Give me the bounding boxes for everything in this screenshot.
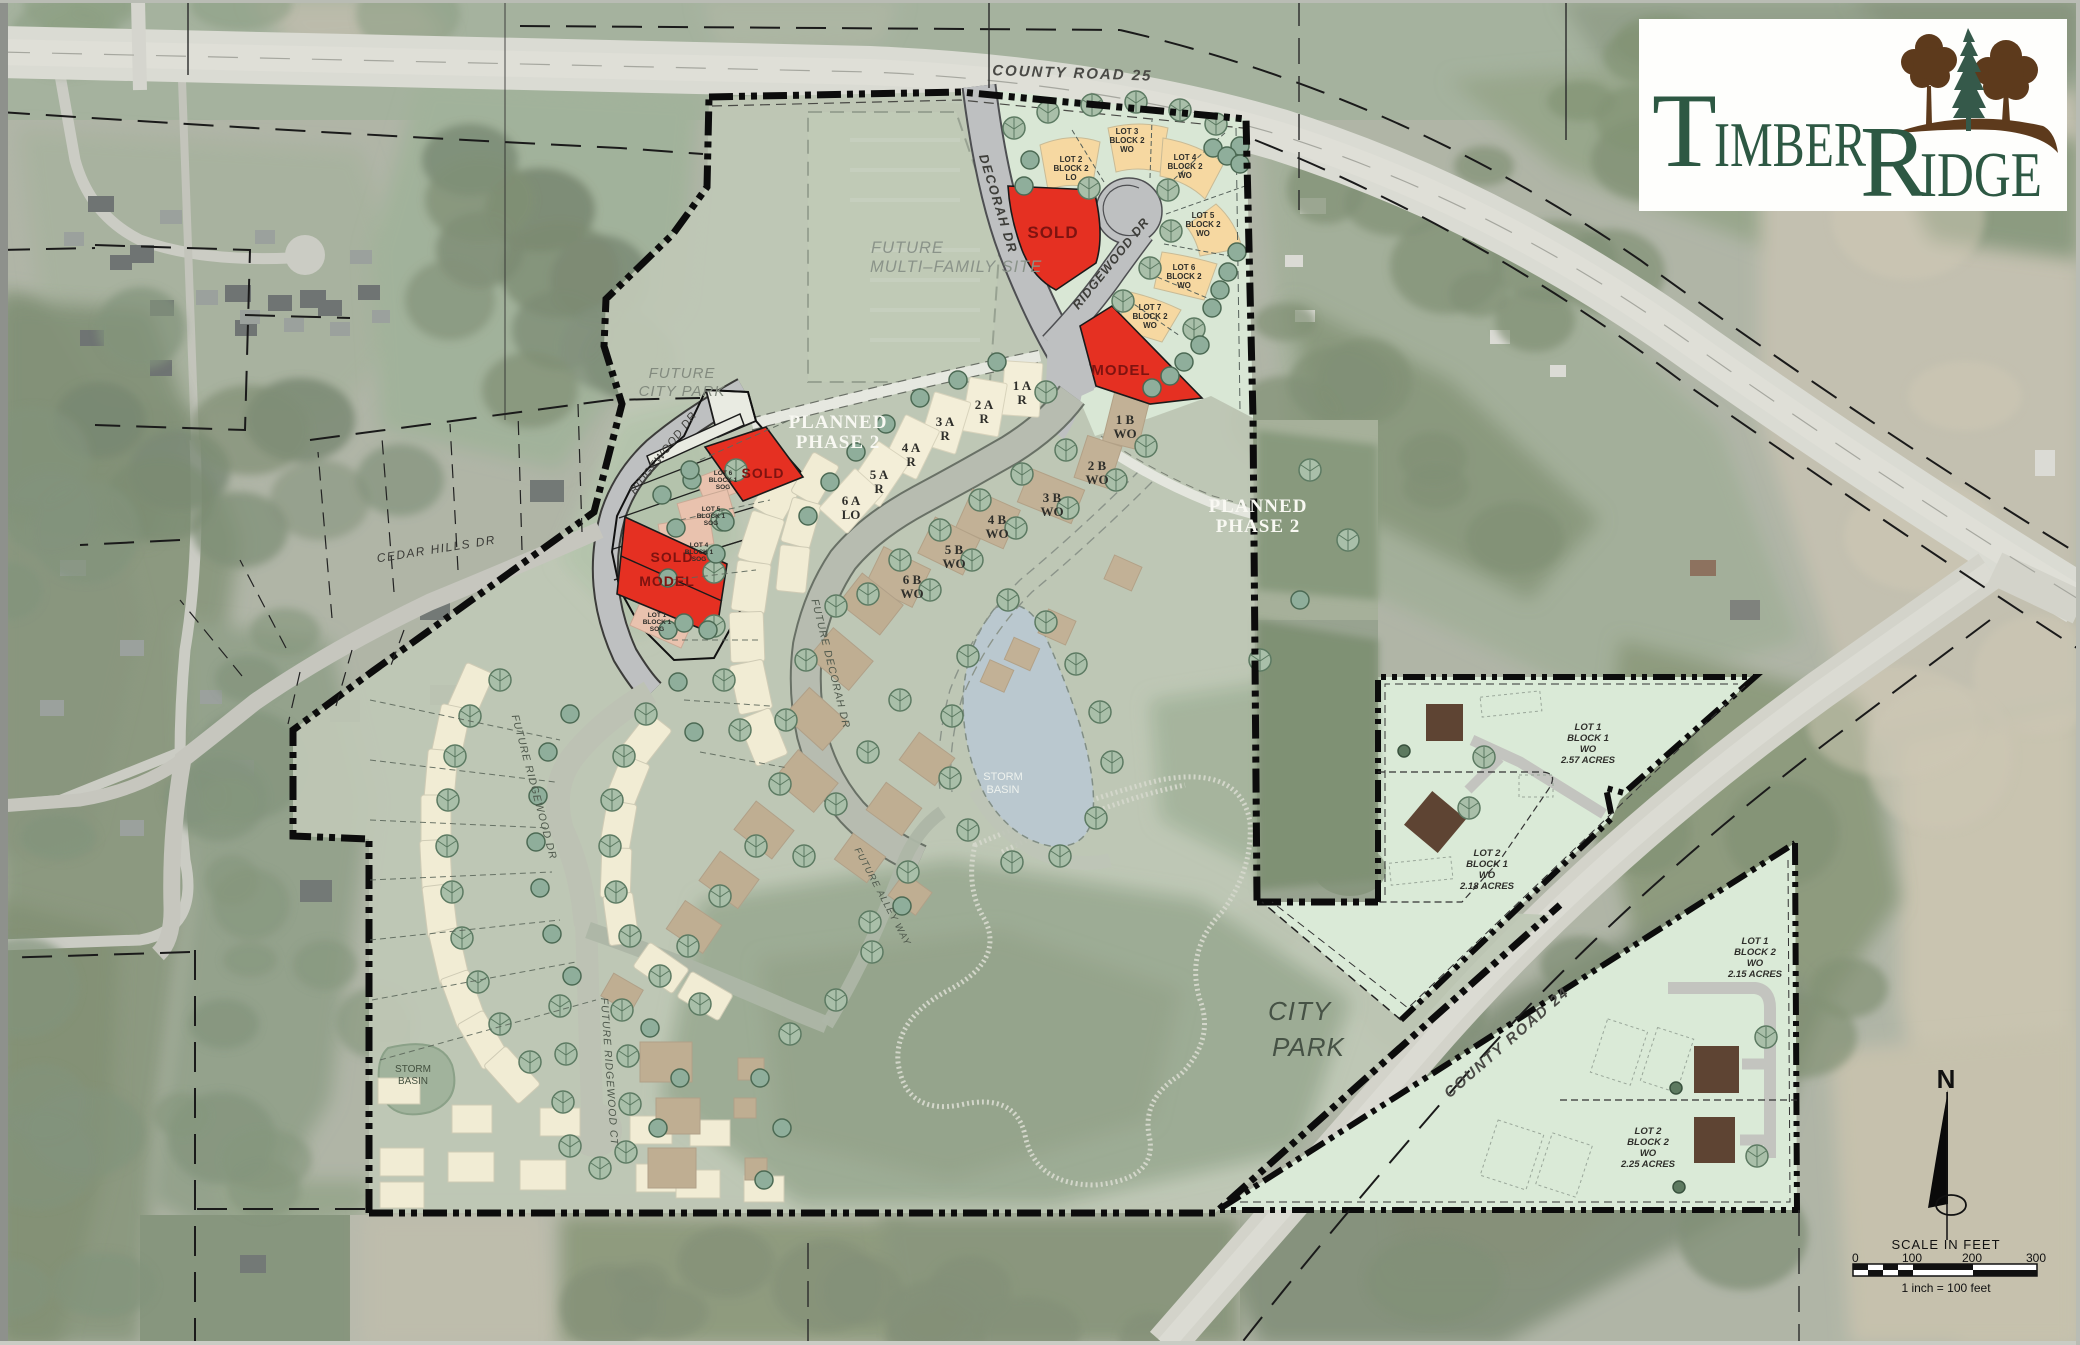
svg-text:PHASE 2: PHASE 2: [1216, 516, 1301, 537]
svg-text:1 B: 1 B: [1116, 412, 1135, 427]
svg-text:N: N: [1937, 1064, 1956, 1094]
svg-text:4 A: 4 A: [902, 440, 921, 455]
svg-text:BLOCK 2: BLOCK 2: [1185, 220, 1221, 229]
svg-text:FUTURE: FUTURE: [649, 365, 716, 382]
svg-text:T: T: [1652, 72, 1717, 189]
svg-text:WO: WO: [1143, 321, 1157, 330]
svg-text:4 B: 4 B: [988, 512, 1007, 527]
svg-text:WO: WO: [1196, 229, 1210, 238]
svg-text:200: 200: [1962, 1251, 1982, 1265]
svg-text:PLANNED: PLANNED: [1209, 496, 1308, 517]
svg-text:MODEL: MODEL: [639, 573, 695, 589]
svg-text:LOT 3: LOT 3: [1116, 127, 1139, 136]
svg-text:BLOCK 1: BLOCK 1: [685, 549, 714, 556]
svg-text:WO: WO: [1178, 171, 1192, 180]
svg-text:1 A: 1 A: [1013, 378, 1032, 393]
svg-text:2.57 ACRES: 2.57 ACRES: [1560, 755, 1616, 766]
svg-text:WO: WO: [1120, 145, 1134, 154]
svg-text:BLOCK 2: BLOCK 2: [1132, 312, 1168, 321]
svg-text:LOT 5: LOT 5: [702, 506, 721, 513]
svg-text:2 B: 2 B: [1088, 458, 1107, 473]
svg-text:WO: WO: [1040, 504, 1063, 519]
svg-text:0: 0: [1852, 1251, 1859, 1265]
svg-text:1 inch = 100 feet: 1 inch = 100 feet: [1901, 1281, 1991, 1295]
svg-text:LOT 6: LOT 6: [1173, 263, 1196, 272]
svg-text:BLOCK 2: BLOCK 2: [1734, 947, 1776, 958]
svg-text:BLOCK 1: BLOCK 1: [709, 477, 738, 484]
svg-text:2 A: 2 A: [975, 397, 994, 412]
svg-text:WO: WO: [1747, 958, 1764, 969]
svg-text:STORM: STORM: [983, 771, 1023, 783]
svg-text:SOG: SOG: [692, 556, 706, 563]
svg-text:R: R: [1017, 392, 1027, 407]
svg-text:BLOCK 1: BLOCK 1: [697, 513, 726, 520]
svg-text:BLOCK 2: BLOCK 2: [1053, 164, 1089, 173]
svg-text:WO: WO: [1113, 426, 1136, 441]
svg-text:2.15 ACRES: 2.15 ACRES: [1727, 969, 1783, 980]
svg-text:SCALE IN FEET: SCALE IN FEET: [1891, 1237, 2000, 1252]
svg-text:BLOCK 2: BLOCK 2: [1166, 272, 1202, 281]
svg-text:2.18 ACRES: 2.18 ACRES: [1459, 881, 1515, 892]
svg-text:PARK: PARK: [1272, 1032, 1346, 1062]
svg-text:IDGE: IDGE: [1920, 140, 2042, 210]
svg-text:LOT 2: LOT 2: [1474, 848, 1502, 859]
svg-text:BLOCK 1: BLOCK 1: [1466, 859, 1508, 870]
svg-text:LOT 6: LOT 6: [714, 470, 733, 477]
svg-text:BLOCK 2: BLOCK 2: [1627, 1137, 1669, 1148]
svg-text:R: R: [979, 411, 989, 426]
svg-text:LO: LO: [1065, 173, 1076, 182]
svg-text:6 A: 6 A: [842, 493, 861, 508]
svg-text:LOT 7: LOT 7: [1139, 303, 1162, 312]
svg-text:BASIN: BASIN: [398, 1076, 428, 1087]
svg-text:LOT 1: LOT 1: [1575, 722, 1602, 733]
svg-text:LOT 2: LOT 2: [1060, 155, 1083, 164]
svg-text:SOG: SOG: [650, 626, 664, 633]
svg-text:SOLD: SOLD: [1027, 223, 1078, 242]
svg-text:BASIN: BASIN: [986, 784, 1019, 796]
svg-text:WO: WO: [1479, 870, 1496, 881]
svg-text:R: R: [940, 428, 950, 443]
svg-text:CITY PARK: CITY PARK: [639, 383, 726, 400]
svg-text:SOG: SOG: [716, 484, 730, 491]
svg-text:R: R: [874, 481, 884, 496]
svg-text:LOT 1: LOT 1: [648, 612, 667, 619]
svg-text:WO: WO: [985, 526, 1008, 541]
svg-text:WO: WO: [1085, 472, 1108, 487]
svg-text:300: 300: [2026, 1251, 2046, 1265]
svg-text:LOT 1: LOT 1: [1742, 936, 1769, 947]
svg-text:PHASE 2: PHASE 2: [796, 432, 881, 453]
svg-text:2.25 ACRES: 2.25 ACRES: [1620, 1159, 1676, 1170]
svg-text:LOT 5: LOT 5: [1192, 211, 1215, 220]
svg-text:R: R: [1860, 106, 1928, 219]
svg-text:MULTI–FAMILY SITE: MULTI–FAMILY SITE: [870, 258, 1042, 276]
svg-text:STORM: STORM: [395, 1064, 431, 1075]
svg-text:5 A: 5 A: [870, 467, 889, 482]
svg-text:BLOCK 2: BLOCK 2: [1167, 162, 1203, 171]
svg-text:WO: WO: [900, 586, 923, 601]
svg-text:LOT 4: LOT 4: [1174, 153, 1197, 162]
svg-text:SOLD: SOLD: [742, 465, 785, 481]
svg-text:MODEL: MODEL: [1091, 362, 1150, 379]
svg-text:IMBER: IMBER: [1714, 110, 1866, 180]
svg-text:5 B: 5 B: [945, 542, 964, 557]
svg-text:100: 100: [1902, 1251, 1922, 1265]
svg-text:BLOCK 2: BLOCK 2: [1109, 136, 1145, 145]
svg-text:PLANNED: PLANNED: [789, 412, 888, 433]
svg-text:R: R: [906, 454, 916, 469]
svg-text:WO: WO: [1640, 1148, 1657, 1159]
svg-text:LOT 4: LOT 4: [690, 542, 709, 549]
svg-text:WO: WO: [1580, 744, 1597, 755]
svg-text:BLOCK 1: BLOCK 1: [1567, 733, 1609, 744]
svg-text:FUTURE: FUTURE: [871, 239, 944, 257]
svg-text:WO: WO: [942, 556, 965, 571]
svg-text:LO: LO: [842, 507, 861, 522]
svg-text:LOT 2: LOT 2: [1635, 1126, 1663, 1137]
svg-text:3 B: 3 B: [1043, 490, 1062, 505]
svg-text:3 A: 3 A: [936, 414, 955, 429]
svg-text:6 B: 6 B: [903, 572, 922, 587]
svg-text:BLOCK 1: BLOCK 1: [643, 619, 672, 626]
svg-text:CITY: CITY: [1268, 996, 1332, 1026]
svg-text:SOG: SOG: [704, 520, 718, 527]
svg-text:WO: WO: [1177, 281, 1191, 290]
